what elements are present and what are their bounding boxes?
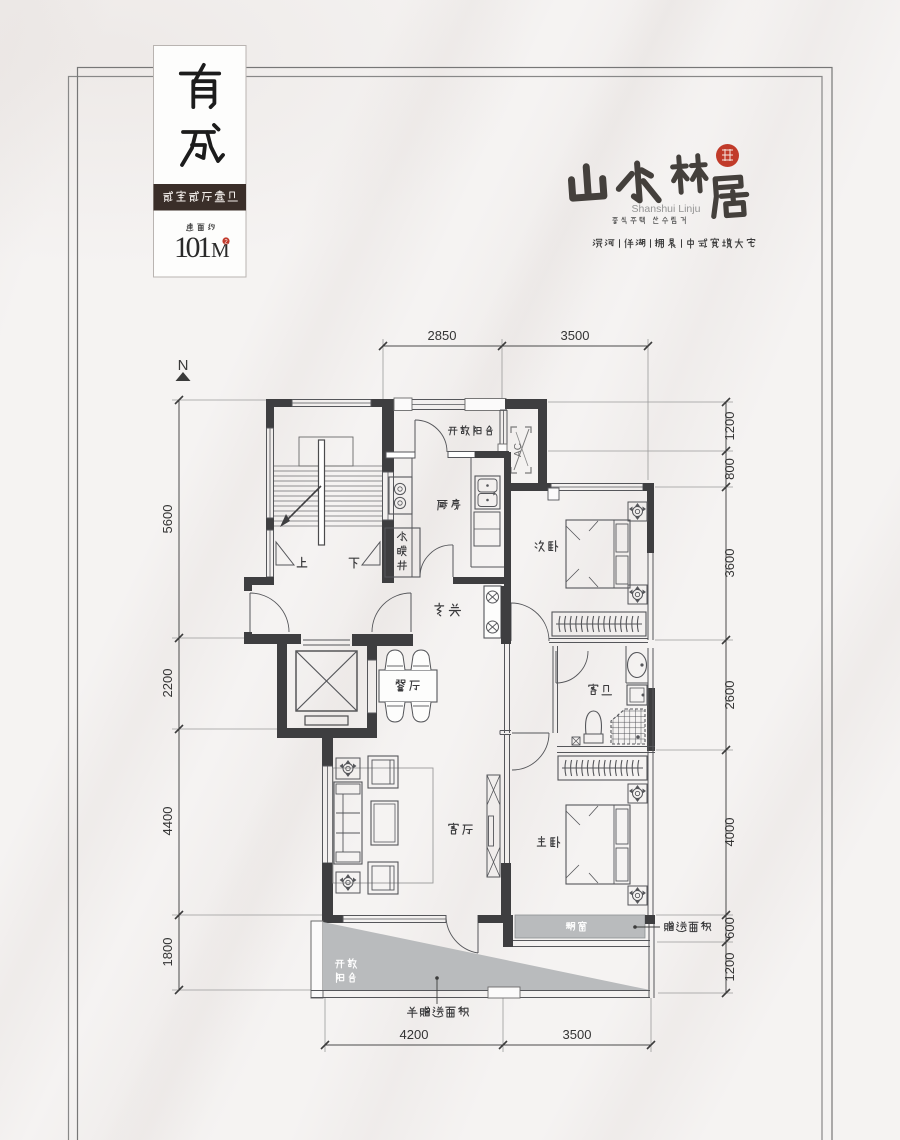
svg-text:101: 101	[174, 231, 212, 264]
svg-text:600: 600	[722, 917, 737, 939]
svg-text:1200: 1200	[722, 953, 737, 982]
svg-text:1800: 1800	[160, 938, 175, 967]
svg-text:4200: 4200	[400, 1027, 429, 1042]
svg-text:4000: 4000	[722, 818, 737, 847]
svg-text:5600: 5600	[160, 505, 175, 534]
svg-text:2200: 2200	[160, 669, 175, 698]
svg-text:3600: 3600	[722, 549, 737, 578]
svg-text:3500: 3500	[561, 328, 590, 343]
svg-text:800: 800	[722, 458, 737, 480]
svg-text:2600: 2600	[722, 681, 737, 710]
svg-text:Shanshui Linju: Shanshui Linju	[632, 203, 701, 215]
svg-text:3500: 3500	[563, 1027, 592, 1042]
svg-text:2850: 2850	[428, 328, 457, 343]
svg-text:AC: AC	[513, 443, 524, 457]
svg-text:4400: 4400	[160, 807, 175, 836]
svg-text:1200: 1200	[722, 412, 737, 441]
svg-text:N: N	[178, 357, 189, 374]
